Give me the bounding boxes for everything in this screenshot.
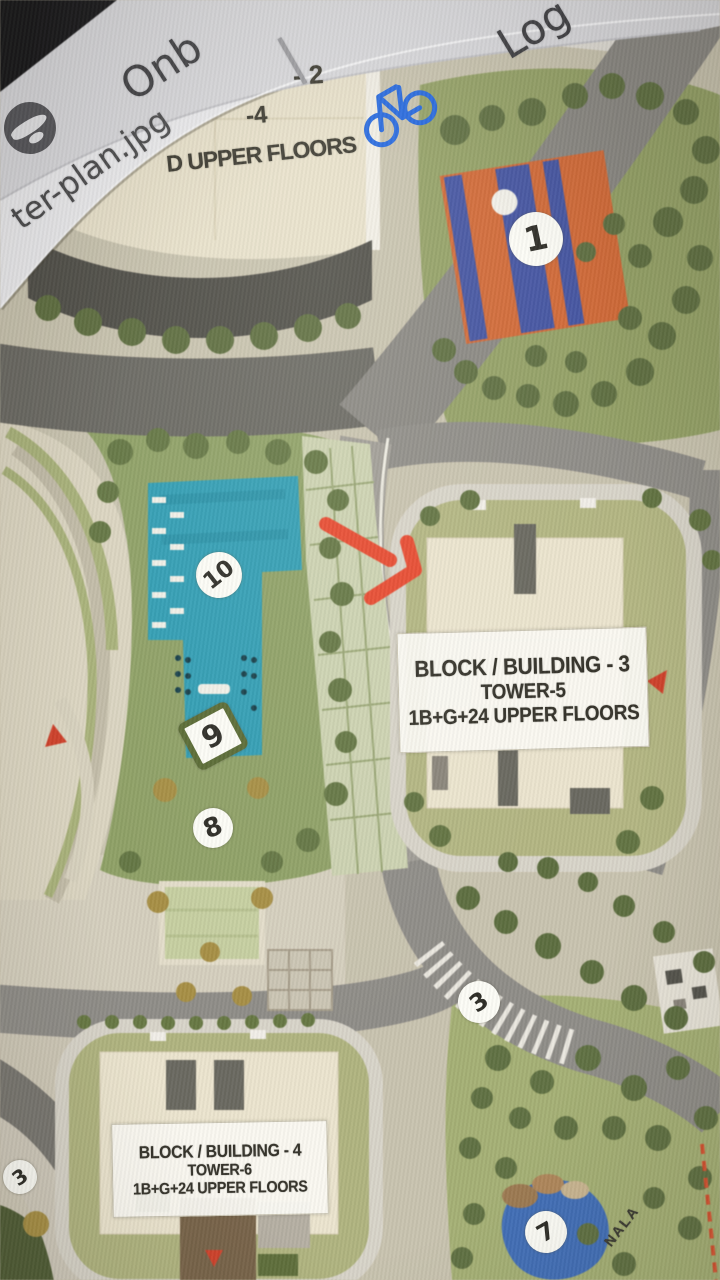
block3-line2: TOWER-5 (480, 678, 566, 704)
block4-label: BLOCK / BUILDING - 4 TOWER-6 1B+G+24 UPP… (111, 1120, 329, 1218)
block3-line3: 1B+G+24 UPPER FLOORS (408, 700, 639, 730)
top-building-label-line2: -4 (245, 101, 269, 131)
block3-line1: BLOCK / BUILDING - 3 (414, 650, 630, 683)
screen-photo: - 2 -4 D UPPER FLOORS BLOCK / BUILDING -… (0, 0, 720, 1280)
block4-line3: 1B+G+24 UPPER FLOORS (133, 1178, 308, 1199)
block3-label: BLOCK / BUILDING - 3 TOWER-5 1B+G+24 UPP… (396, 627, 649, 754)
block4-line1: BLOCK / BUILDING - 4 (138, 1139, 301, 1163)
block4-line2: TOWER-6 (188, 1161, 253, 1180)
